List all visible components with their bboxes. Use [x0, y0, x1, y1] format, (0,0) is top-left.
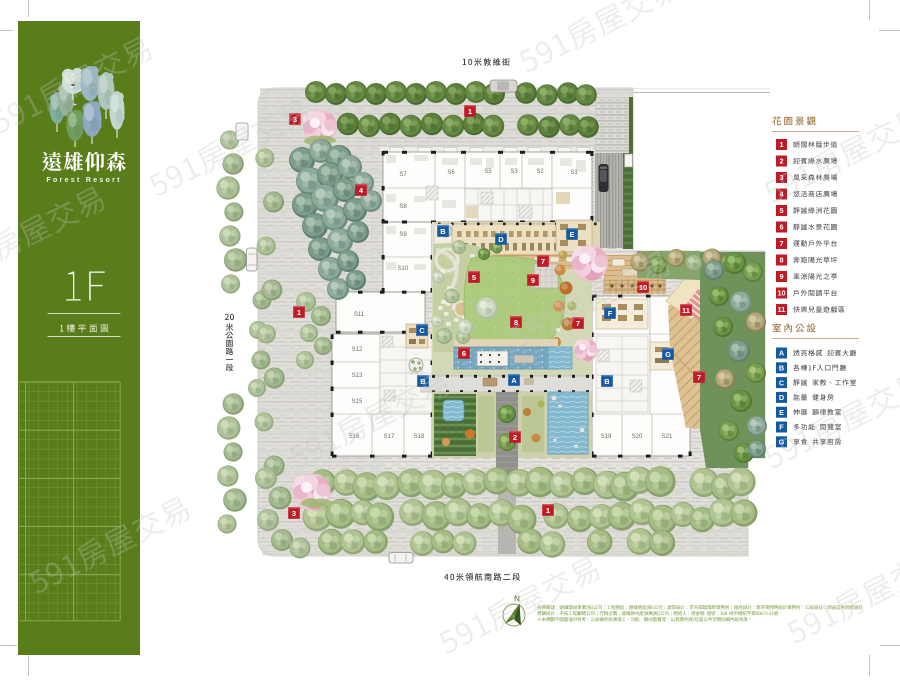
svg-text:1: 1: [546, 506, 550, 515]
svg-text:6: 6: [779, 223, 783, 232]
svg-text:6: 6: [462, 349, 466, 358]
svg-text:S13: S13: [352, 373, 363, 379]
svg-text:S9: S9: [399, 232, 407, 238]
svg-text:B: B: [779, 364, 784, 373]
svg-text:G: G: [665, 350, 671, 359]
svg-text:S3: S3: [510, 169, 518, 175]
svg-text:S20: S20: [632, 434, 643, 440]
svg-text:2: 2: [779, 157, 783, 166]
svg-text:E: E: [779, 408, 784, 417]
svg-text:9: 9: [779, 272, 783, 281]
svg-text:2: 2: [513, 433, 517, 442]
svg-text:1: 1: [468, 107, 472, 116]
svg-text:7: 7: [576, 319, 580, 328]
svg-text:S11: S11: [354, 312, 365, 318]
svg-text:S10: S10: [398, 266, 409, 272]
svg-text:S2: S2: [536, 169, 544, 175]
svg-text:11: 11: [682, 306, 690, 315]
svg-text:E: E: [569, 230, 574, 239]
svg-text:S5: S5: [484, 169, 492, 175]
svg-text:F: F: [608, 309, 613, 318]
svg-text:7: 7: [697, 373, 701, 382]
svg-text:B: B: [604, 377, 610, 386]
svg-text:D: D: [779, 393, 784, 402]
svg-text:S18: S18: [414, 434, 425, 440]
svg-text:S21: S21: [662, 434, 673, 440]
svg-text:C: C: [779, 378, 785, 387]
svg-text:S1: S1: [570, 170, 578, 176]
svg-text:10: 10: [777, 289, 785, 298]
svg-text:A: A: [511, 376, 517, 385]
svg-text:S7: S7: [399, 172, 407, 178]
svg-text:8: 8: [779, 256, 783, 265]
svg-text:3: 3: [292, 509, 296, 518]
svg-text:Forest Resort: Forest Resort: [46, 175, 121, 184]
svg-text:S15: S15: [352, 399, 363, 405]
svg-text:S19: S19: [601, 434, 612, 440]
svg-text:B: B: [440, 227, 446, 236]
svg-text:A: A: [779, 349, 785, 358]
svg-text:1: 1: [297, 308, 301, 317]
svg-text:S8: S8: [399, 204, 407, 210]
svg-text:1: 1: [779, 140, 783, 149]
svg-text:S17: S17: [384, 434, 395, 440]
svg-text:9: 9: [531, 276, 535, 285]
svg-text:C: C: [419, 326, 425, 335]
svg-text:7: 7: [541, 257, 545, 266]
svg-text:5: 5: [779, 206, 783, 215]
svg-text:D: D: [498, 235, 504, 244]
svg-text:S6: S6: [447, 170, 455, 176]
svg-text:7: 7: [779, 239, 783, 248]
svg-text:F: F: [779, 423, 784, 432]
svg-text:11: 11: [778, 305, 786, 314]
svg-text:5: 5: [472, 273, 476, 282]
svg-text:S12: S12: [352, 347, 363, 353]
